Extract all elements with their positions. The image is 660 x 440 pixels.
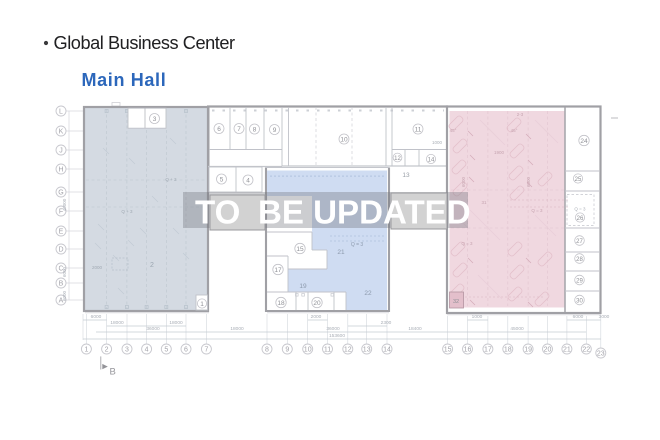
svg-text:B: B — [59, 281, 64, 288]
svg-text:11: 11 — [324, 347, 331, 354]
svg-text:15: 15 — [296, 246, 304, 253]
svg-text:3: 3 — [125, 347, 129, 354]
svg-text:2000: 2000 — [311, 314, 322, 320]
svg-text:8: 8 — [253, 127, 257, 134]
svg-text:D: D — [58, 247, 63, 254]
svg-text:13: 13 — [363, 347, 371, 354]
svg-text:1900: 1900 — [494, 150, 505, 155]
svg-text:2: 2 — [150, 262, 154, 269]
svg-text:J: J — [59, 148, 63, 155]
svg-text:Global Business Center: Global Business Center — [54, 33, 236, 53]
svg-text:3: 3 — [153, 116, 157, 123]
svg-text:7: 7 — [204, 347, 208, 354]
svg-text:B: B — [110, 367, 116, 378]
svg-text:2300: 2300 — [381, 320, 392, 326]
svg-text:1: 1 — [84, 347, 88, 354]
svg-text:25: 25 — [575, 177, 582, 183]
svg-text:36000: 36000 — [146, 326, 160, 332]
svg-text:23: 23 — [597, 351, 605, 358]
svg-text:Main Hall: Main Hall — [82, 70, 167, 90]
svg-text:8: 8 — [265, 347, 269, 354]
svg-text:24: 24 — [580, 138, 588, 145]
svg-text:4: 4 — [246, 178, 250, 185]
svg-text:12: 12 — [344, 347, 352, 354]
svg-text:45°: 45° — [511, 128, 518, 133]
svg-text:18: 18 — [504, 347, 512, 354]
svg-text:Q + 3: Q + 3 — [165, 177, 177, 182]
svg-text:27: 27 — [576, 239, 583, 245]
svg-text:6000: 6000 — [91, 314, 102, 320]
svg-text:18400: 18400 — [408, 326, 422, 332]
svg-text:20: 20 — [544, 347, 552, 354]
svg-text:Q = 3: Q = 3 — [531, 208, 543, 213]
svg-text:14: 14 — [383, 347, 391, 354]
svg-text:22: 22 — [582, 347, 590, 354]
svg-text:6000: 6000 — [573, 314, 584, 320]
svg-text:Q = 3: Q = 3 — [351, 242, 364, 248]
svg-text:2000: 2000 — [92, 265, 103, 270]
svg-text:E: E — [59, 229, 64, 236]
svg-text:21: 21 — [563, 347, 571, 354]
svg-text:19: 19 — [299, 283, 307, 290]
svg-text:Q = 3: Q = 3 — [574, 207, 586, 212]
svg-text:6000: 6000 — [461, 176, 466, 187]
svg-text:5: 5 — [164, 347, 168, 354]
svg-text:2-3: 2-3 — [517, 112, 524, 117]
svg-text:45°: 45° — [450, 128, 457, 133]
svg-text:13: 13 — [402, 172, 410, 179]
svg-text:12: 12 — [394, 156, 401, 162]
svg-text:6: 6 — [184, 347, 188, 354]
svg-text:17: 17 — [484, 347, 492, 354]
svg-text:1: 1 — [200, 301, 204, 308]
svg-text:40000: 40000 — [62, 198, 67, 211]
svg-text:20: 20 — [313, 300, 321, 307]
svg-text:18: 18 — [277, 300, 285, 307]
svg-text:22: 22 — [364, 290, 372, 297]
svg-text:K: K — [59, 129, 64, 136]
svg-text:15: 15 — [444, 347, 452, 354]
svg-text:9: 9 — [273, 127, 277, 134]
svg-text:10: 10 — [340, 137, 348, 144]
svg-text:45000: 45000 — [510, 326, 524, 332]
svg-text:18000: 18000 — [230, 326, 244, 332]
svg-text:6000: 6000 — [526, 176, 531, 187]
svg-text:L: L — [59, 109, 63, 116]
svg-text:21: 21 — [337, 249, 345, 256]
svg-text:153600: 153600 — [329, 333, 345, 339]
svg-text:31: 31 — [481, 200, 487, 205]
svg-text:1000: 1000 — [472, 314, 483, 320]
svg-text:32: 32 — [453, 299, 459, 305]
svg-text:6000: 6000 — [62, 290, 67, 301]
svg-text:18000: 18000 — [169, 320, 183, 326]
svg-text:14: 14 — [428, 158, 435, 164]
svg-text:6000: 6000 — [62, 266, 67, 277]
svg-text:5: 5 — [220, 177, 224, 184]
svg-text:7: 7 — [237, 126, 241, 133]
svg-text:19: 19 — [524, 347, 532, 354]
svg-text:9: 9 — [285, 347, 289, 354]
svg-text:G: G — [58, 190, 63, 197]
svg-text:36000: 36000 — [326, 326, 340, 332]
svg-text:4: 4 — [145, 347, 149, 354]
svg-text:16: 16 — [464, 347, 472, 354]
svg-text:29: 29 — [576, 279, 583, 285]
svg-text:6: 6 — [217, 126, 221, 133]
svg-text:18000: 18000 — [110, 320, 124, 326]
svg-text:26: 26 — [577, 216, 584, 222]
svg-text:28: 28 — [576, 257, 583, 263]
svg-text:1000: 1000 — [432, 140, 443, 145]
svg-text:Q = 3: Q = 3 — [461, 241, 473, 246]
svg-text:Q + 3: Q + 3 — [121, 209, 133, 214]
svg-text:2: 2 — [105, 347, 109, 354]
svg-text:11: 11 — [415, 127, 422, 134]
svg-text:30: 30 — [576, 299, 583, 305]
svg-text:TO BE UPDATED: TO BE UPDATED — [195, 195, 471, 232]
svg-text:3000: 3000 — [599, 314, 610, 320]
svg-text:10: 10 — [304, 347, 312, 354]
svg-text:17: 17 — [274, 267, 282, 274]
svg-text:H: H — [58, 167, 63, 174]
